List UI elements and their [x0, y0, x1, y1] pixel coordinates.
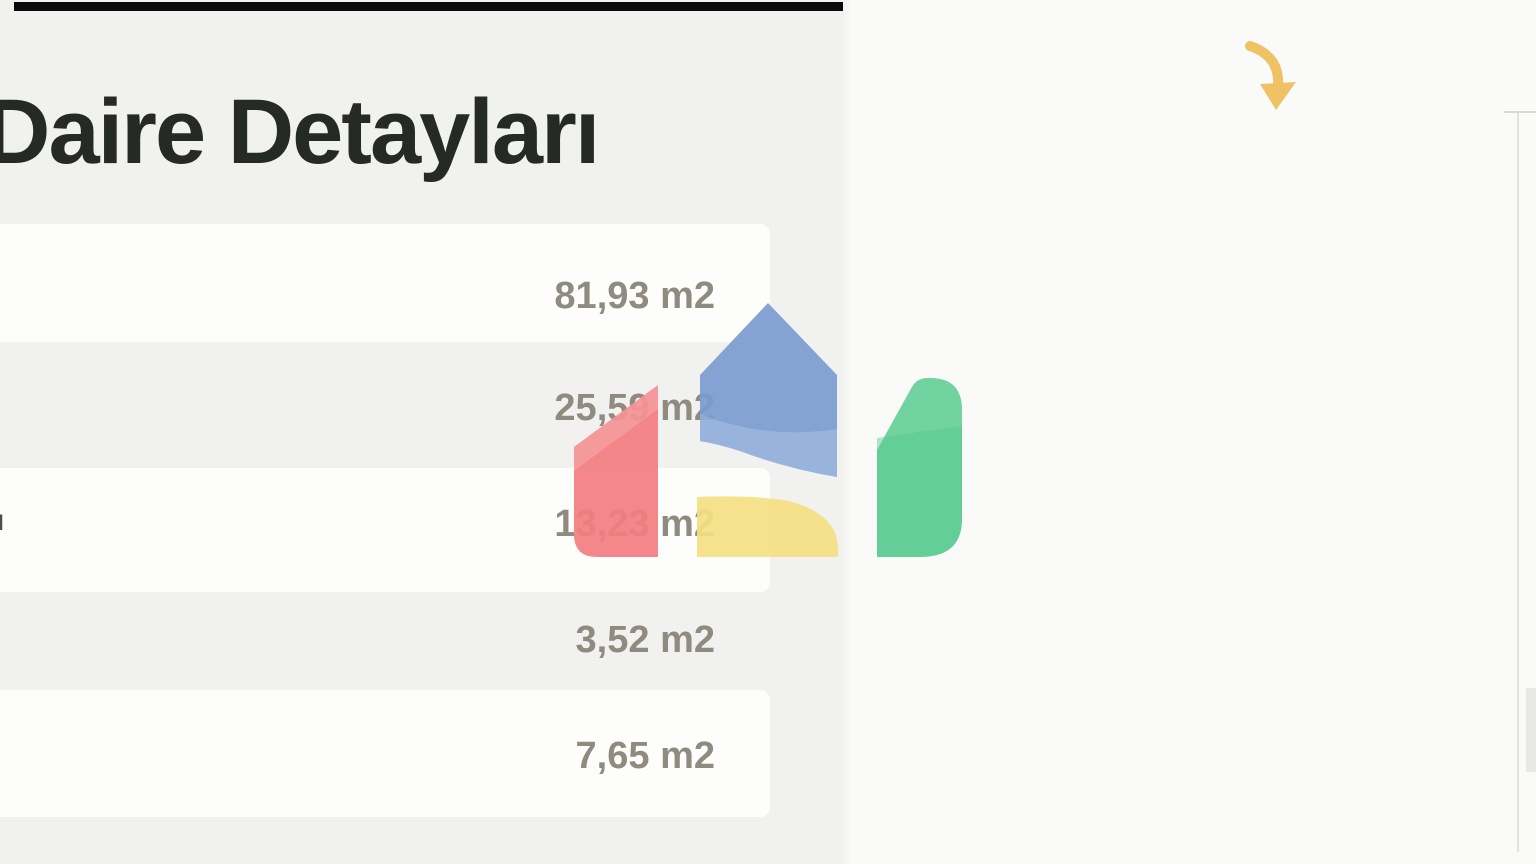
listing-detail-page: Daire Detayları ı 81,93 m2 25,59 m2 13,2…	[0, 0, 1536, 864]
carousel-peek-content	[1526, 688, 1536, 772]
row-label-fragment: ı	[0, 504, 4, 538]
carousel-peek-corner	[1504, 111, 1536, 113]
logo-green-shape	[877, 378, 962, 557]
brand-house-logo-icon	[560, 288, 970, 563]
logo-blue-shape	[700, 303, 837, 477]
logo-red-shape	[574, 385, 658, 557]
top-black-bar	[14, 2, 853, 11]
page-title: Daire Detayları	[0, 80, 884, 185]
carousel-peek-border	[1517, 112, 1519, 852]
logo-yellow-shape	[697, 496, 838, 557]
detail-row-4	[0, 592, 770, 690]
entrance-arrow-icon	[1222, 38, 1304, 118]
detail-row-5	[0, 690, 770, 817]
